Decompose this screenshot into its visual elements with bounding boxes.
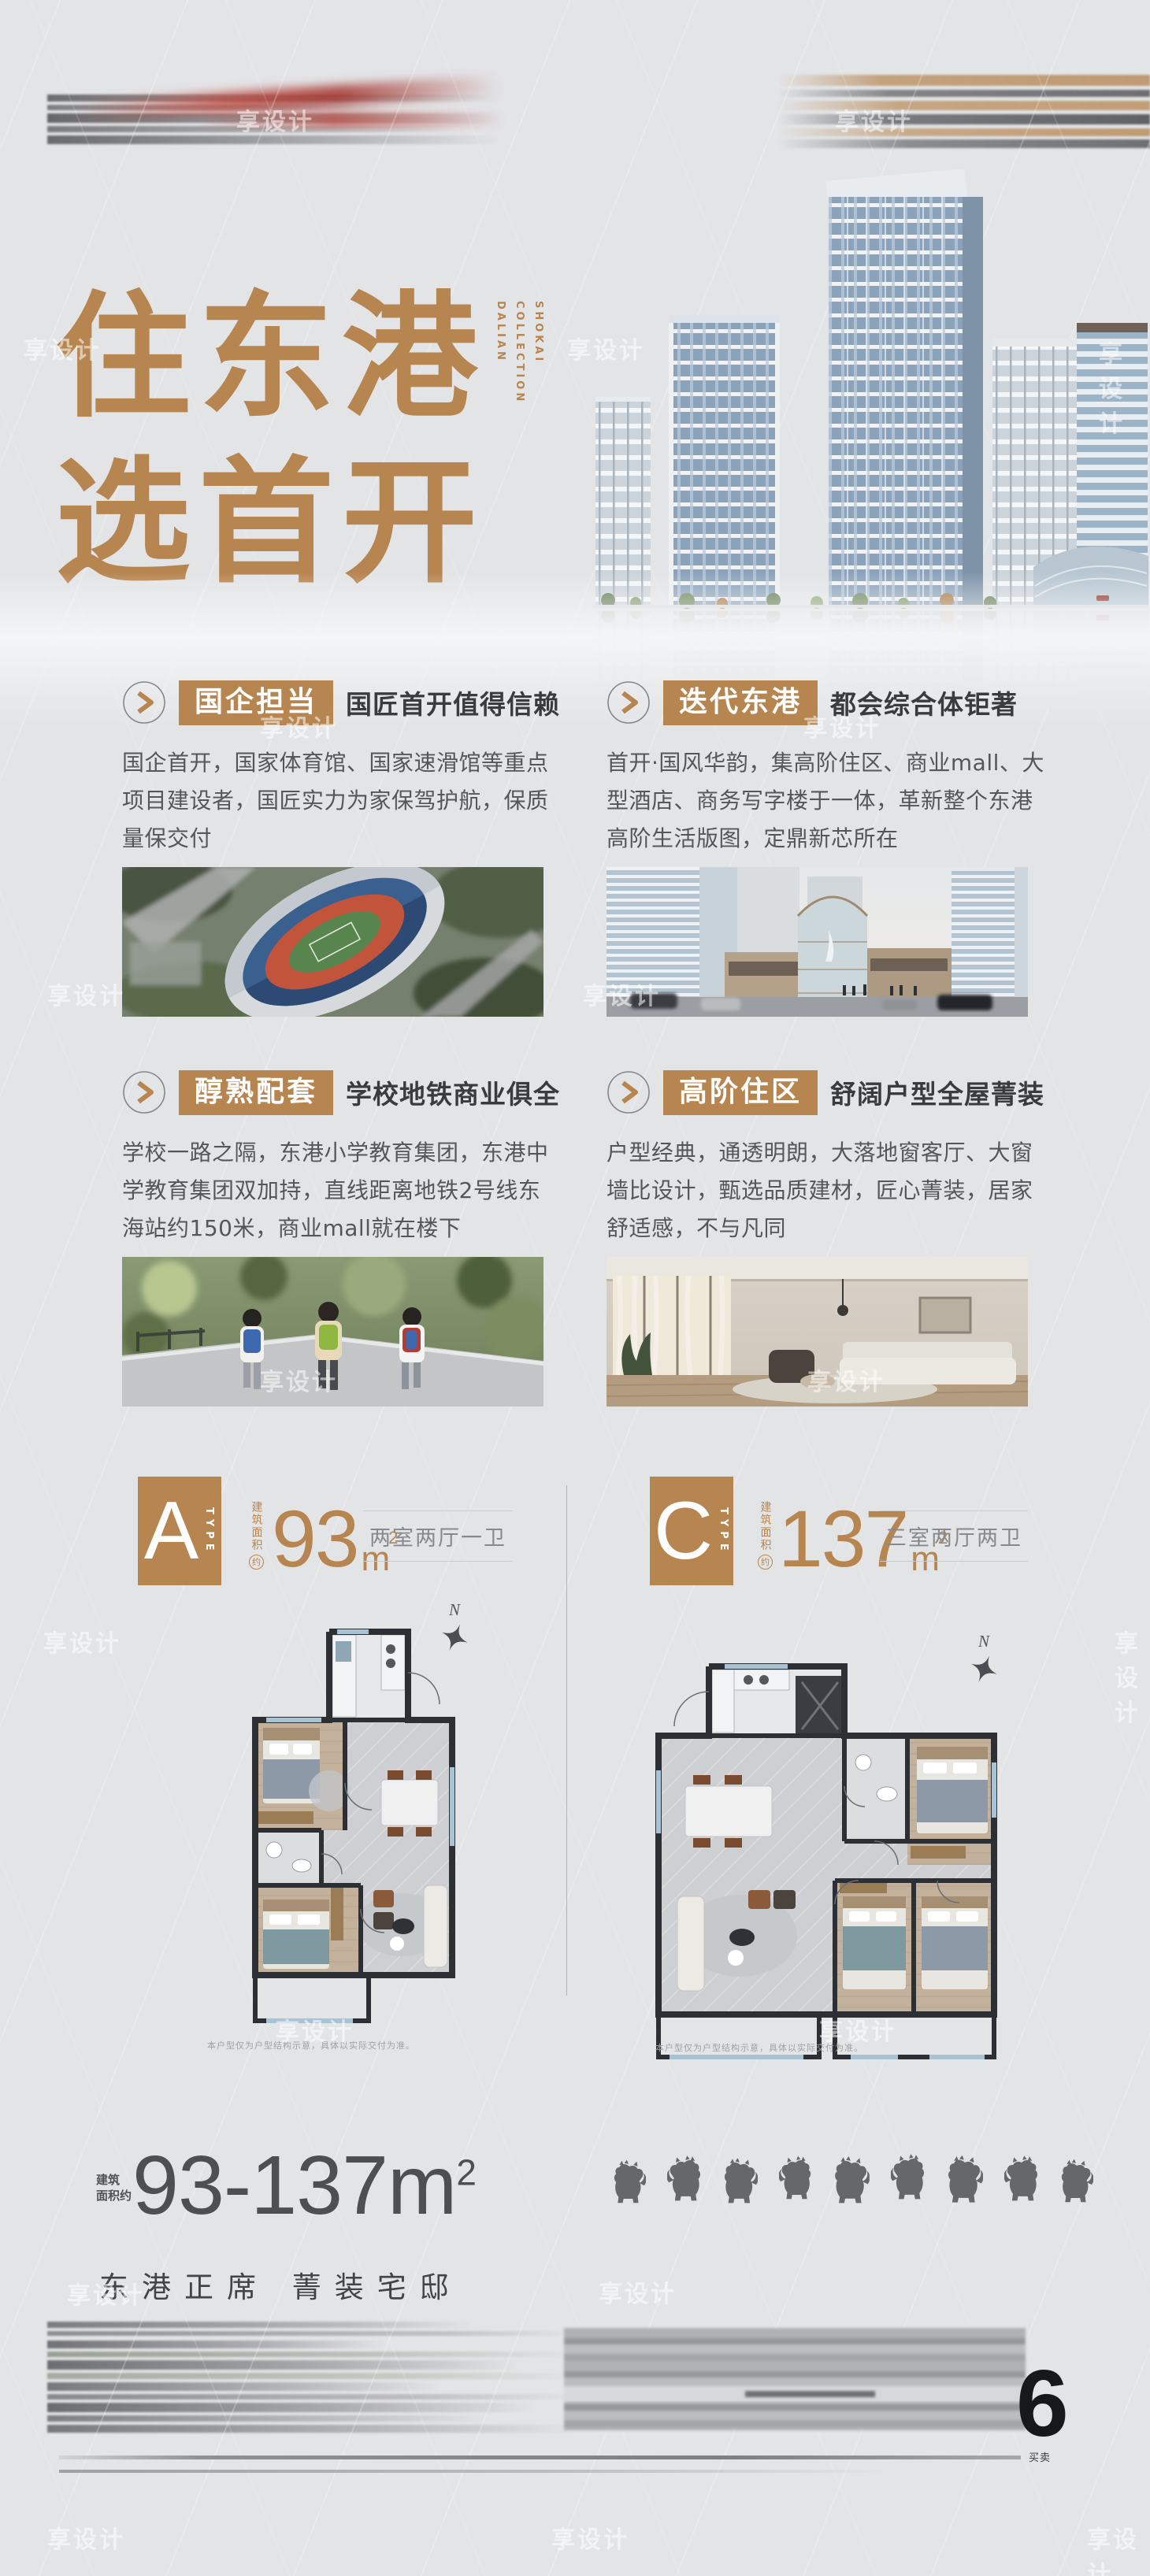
area-label-circle: 约	[758, 1555, 773, 1570]
mall-complex-render	[607, 867, 1028, 1017]
area-range-text: 93-137m	[132, 2139, 456, 2232]
ridge-beast-icon	[723, 2158, 758, 2207]
brand-vertical-text: SHOKAI COLLECTION DALIAN	[495, 301, 544, 404]
footer-area-label-line1: 建筑	[96, 2172, 132, 2188]
chevron-right-circle-icon	[607, 1070, 651, 1114]
area-range-sup: 2	[456, 2152, 476, 2193]
roof-ridge-beast-icons	[613, 2147, 1093, 2207]
area-label-chars: 建筑面积	[250, 1501, 263, 1551]
section-subtitle: 舒阔户型全屋菁装	[830, 1073, 1044, 1111]
plan-type-word: TYPE	[718, 1507, 729, 1555]
plan-a-floorplan	[211, 1625, 457, 2029]
section-tag: 迭代东港	[663, 680, 818, 725]
north-label: N	[449, 1600, 460, 1620]
watermark: 享设计	[47, 977, 125, 1011]
plan-c-disclaimer: 本户型仅为户型结构示意，具体以实际交付为准。	[655, 2041, 863, 2054]
footer-area-label-line2: 面积约	[96, 2188, 132, 2203]
section-subtitle: 国匠首开值得信赖	[346, 684, 560, 721]
plan-c-rooms: 三室两厅两卫	[880, 1510, 1028, 1562]
section-diedai: 迭代东港 都会综合体钜著 首开·国风华韵，集高阶住区、商业mall、大型酒店、商…	[607, 680, 1044, 1017]
section-body: 首开·国风华韵，集高阶住区、商业mall、大型酒店、商务写字楼于一体，革新整个东…	[607, 744, 1044, 858]
gray-bar-dash	[745, 2391, 875, 2397]
section-tag: 高阶住区	[663, 1070, 818, 1115]
footer-slogan: 东港正席 菁装宅邸	[99, 2263, 462, 2306]
chevron-right-circle-icon	[122, 680, 166, 725]
plan-a-disclaimer: 本户型仅为户型结构示意，具体以实际交付为准。	[207, 2039, 415, 2052]
stadium-aerial-photo	[122, 867, 543, 1017]
children-walking-photo	[122, 1257, 543, 1407]
section-body: 户型经典，通透明朗，大落地窗客厅、大窗墙比设计，甄选品质建材，匠心菁装，居家舒适…	[607, 1134, 1044, 1247]
section-chunshu: 醇熟配套 学校地铁商业俱全 学校一路之隔，东港小学教育集团，东港中学教育集团双加…	[122, 1069, 560, 1407]
area-number: 93	[272, 1503, 358, 1577]
watermark: 享设计	[599, 2274, 677, 2309]
real-estate-poster: 住东港 选首开 SHOKAI COLLECTION DALIAN 国企担当 国匠…	[0, 0, 1150, 2576]
plan-a-rooms: 两室两厅一卫	[364, 1510, 512, 1562]
plan-c-type-badge: C TYPE	[650, 1477, 733, 1585]
chevron-right-circle-icon	[122, 1070, 166, 1114]
ridge-beast-icon	[947, 2155, 983, 2207]
footer-rule-2	[59, 2470, 890, 2473]
plan-type-letter: A	[144, 1490, 198, 1572]
section-guoqi: 国企担当 国匠首开值得信赖 国企首开，国家体育馆、国家速滑馆等重点项目建设者，国…	[122, 680, 560, 1017]
section-subtitle: 都会综合体钜著	[830, 684, 1018, 721]
watermark: 享设计	[551, 2520, 629, 2555]
brand-line: SHOKAI	[532, 301, 544, 404]
section-subtitle: 学校地铁商业俱全	[346, 1073, 560, 1111]
bottom-gray-bar	[564, 2328, 1026, 2430]
plan-type-word: TYPE	[203, 1507, 215, 1555]
ridge-beast-icon	[1060, 2158, 1093, 2207]
page-number: 6	[1016, 2366, 1069, 2441]
watermark: 享设计	[1115, 1624, 1150, 1728]
brand-line: COLLECTION	[514, 301, 525, 404]
watermark: 享设计	[43, 1624, 121, 1659]
watermark: 享设计	[1087, 2520, 1150, 2576]
column-divider	[566, 1485, 567, 1996]
red-streak	[197, 112, 504, 128]
ridge-beast-icon	[1004, 2153, 1039, 2207]
plan-c-floorplan	[654, 1660, 999, 2062]
brand-line: DALIAN	[495, 301, 506, 404]
living-room-photo	[607, 1257, 1028, 1407]
section-body: 学校一路之隔，东港小学教育集团，东港中学教育集团双加持，直线距离地铁2号线东海站…	[122, 1134, 560, 1247]
title-line-1: 住东港	[55, 290, 485, 425]
north-label: N	[978, 1632, 989, 1651]
plan-type-letter: C	[654, 1490, 713, 1572]
footer-area-label: 建筑 面积约	[96, 2172, 132, 2203]
plan-a-type-badge: A TYPE	[138, 1477, 221, 1585]
watermark: 享设计	[47, 2520, 125, 2555]
area-label-chars: 建筑面积	[759, 1501, 772, 1551]
chevron-right-circle-icon	[607, 680, 651, 725]
title-line-2: 选首开	[55, 455, 485, 591]
ridge-beast-icon	[667, 2153, 702, 2207]
section-tag: 醇熟配套	[179, 1070, 333, 1115]
plan-c-area-label: 建筑面积 约	[758, 1501, 773, 1570]
ridge-beast-icon	[779, 2152, 812, 2207]
footer-rule-1	[59, 2456, 1021, 2459]
section-gaojie: 高阶住区 舒阔户型全屋菁装 户型经典，通透明朗，大落地窗客厅、大窗墙比设计，甄选…	[607, 1069, 1044, 1407]
plan-a-area-label: 建筑面积 约	[249, 1501, 264, 1570]
ridge-beast-icon	[613, 2159, 646, 2207]
ridge-beast-icon	[891, 2150, 926, 2207]
ridge-beast-icon	[833, 2156, 870, 2207]
area-label-circle: 约	[249, 1555, 264, 1570]
footer-area-range: 93-137m2	[132, 2144, 476, 2227]
section-body: 国企首开，国家体育馆、国家速滑馆等重点项目建设者，国匠实力为家保驾护航，保质量保…	[122, 744, 560, 858]
section-tag: 国企担当	[179, 680, 333, 725]
